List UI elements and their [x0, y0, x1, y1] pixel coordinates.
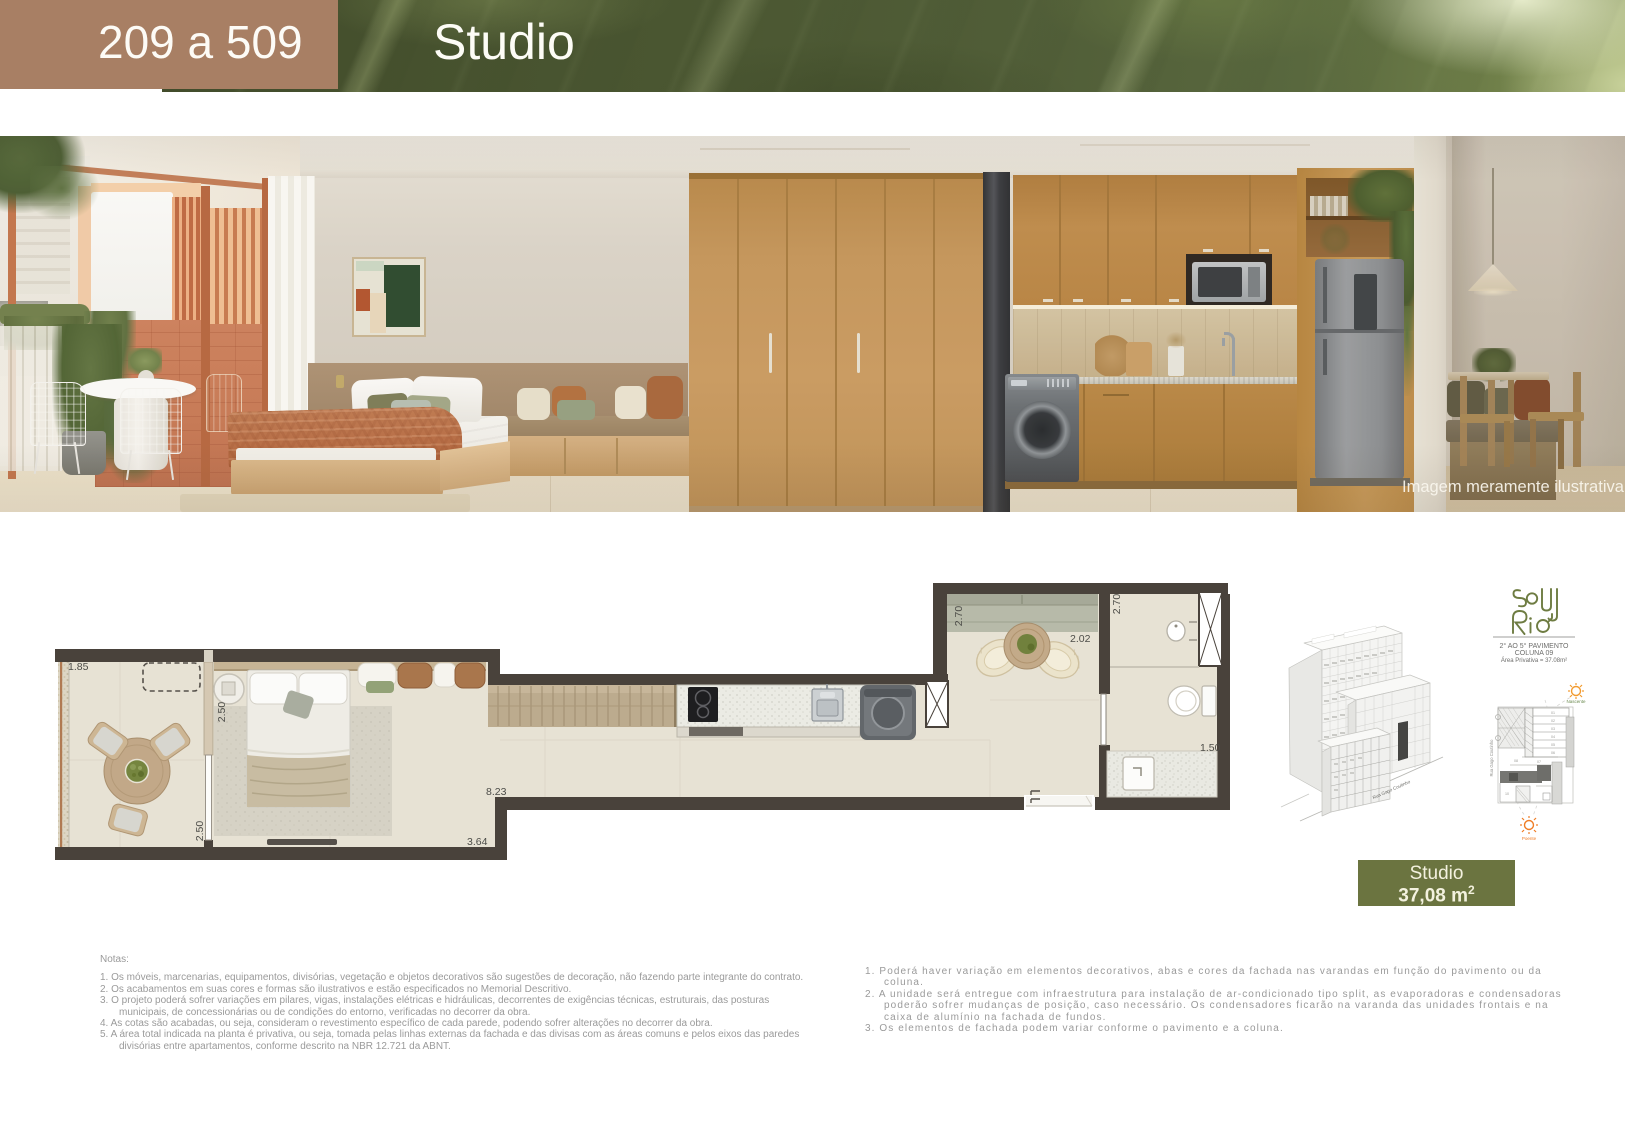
svg-text:COLUNA 09: COLUNA 09	[1515, 650, 1554, 657]
svg-text:2.02: 2.02	[1070, 633, 1091, 645]
svg-text:2.50: 2.50	[194, 821, 206, 842]
svg-text:01: 01	[1551, 711, 1555, 715]
svg-text:Área Privativa = 37.08m²: Área Privativa = 37.08m²	[1501, 657, 1567, 664]
svg-text:Poente: Poente	[1522, 836, 1537, 841]
svg-text:3.64: 3.64	[467, 836, 488, 848]
svg-text:07: 07	[1537, 760, 1541, 764]
svg-text:1.50: 1.50	[1200, 742, 1221, 754]
svg-text:Rua Gago Coutinho: Rua Gago Coutinho	[1489, 739, 1494, 777]
svg-text:1.85: 1.85	[68, 661, 89, 673]
svg-text:Nascente: Nascente	[1566, 699, 1586, 704]
svg-text:10: 10	[1505, 792, 1509, 796]
svg-text:2.70: 2.70	[1111, 594, 1123, 615]
svg-text:04: 04	[1551, 735, 1555, 739]
svg-text:8.23: 8.23	[486, 786, 507, 798]
svg-text:05: 05	[1551, 743, 1555, 747]
svg-text:08: 08	[1514, 759, 1518, 763]
svg-text:06: 06	[1551, 751, 1555, 755]
svg-text:2° AO 5° PAVIMENTO: 2° AO 5° PAVIMENTO	[1499, 642, 1569, 650]
svg-text:03: 03	[1551, 727, 1555, 731]
svg-text:2.70: 2.70	[953, 606, 965, 627]
svg-text:2.50: 2.50	[216, 702, 228, 723]
svg-text:02: 02	[1551, 719, 1555, 723]
